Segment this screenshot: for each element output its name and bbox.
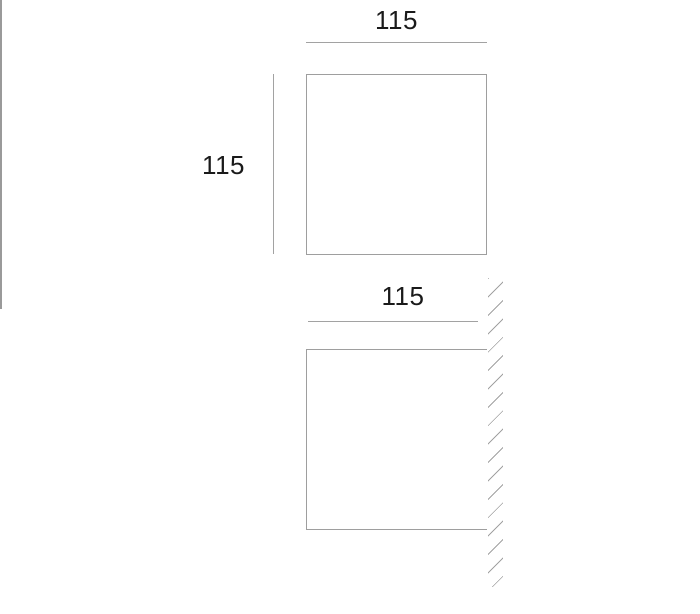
wall-line [0, 0, 2, 309]
fixture-front-outline [306, 74, 487, 255]
side-depth-dimension-line [308, 321, 478, 322]
front-height-dimension-label: 115 [183, 152, 245, 178]
side-depth-dimension-label: 115 [308, 283, 498, 309]
dimension-drawing-canvas: 115 115 115 [0, 0, 700, 614]
front-height-dimension-line [273, 74, 274, 254]
front-width-dimension-label: 115 [306, 7, 487, 33]
front-width-dimension-line [306, 42, 487, 43]
fixture-side-outline [306, 349, 487, 530]
wall-hatching [488, 278, 503, 587]
